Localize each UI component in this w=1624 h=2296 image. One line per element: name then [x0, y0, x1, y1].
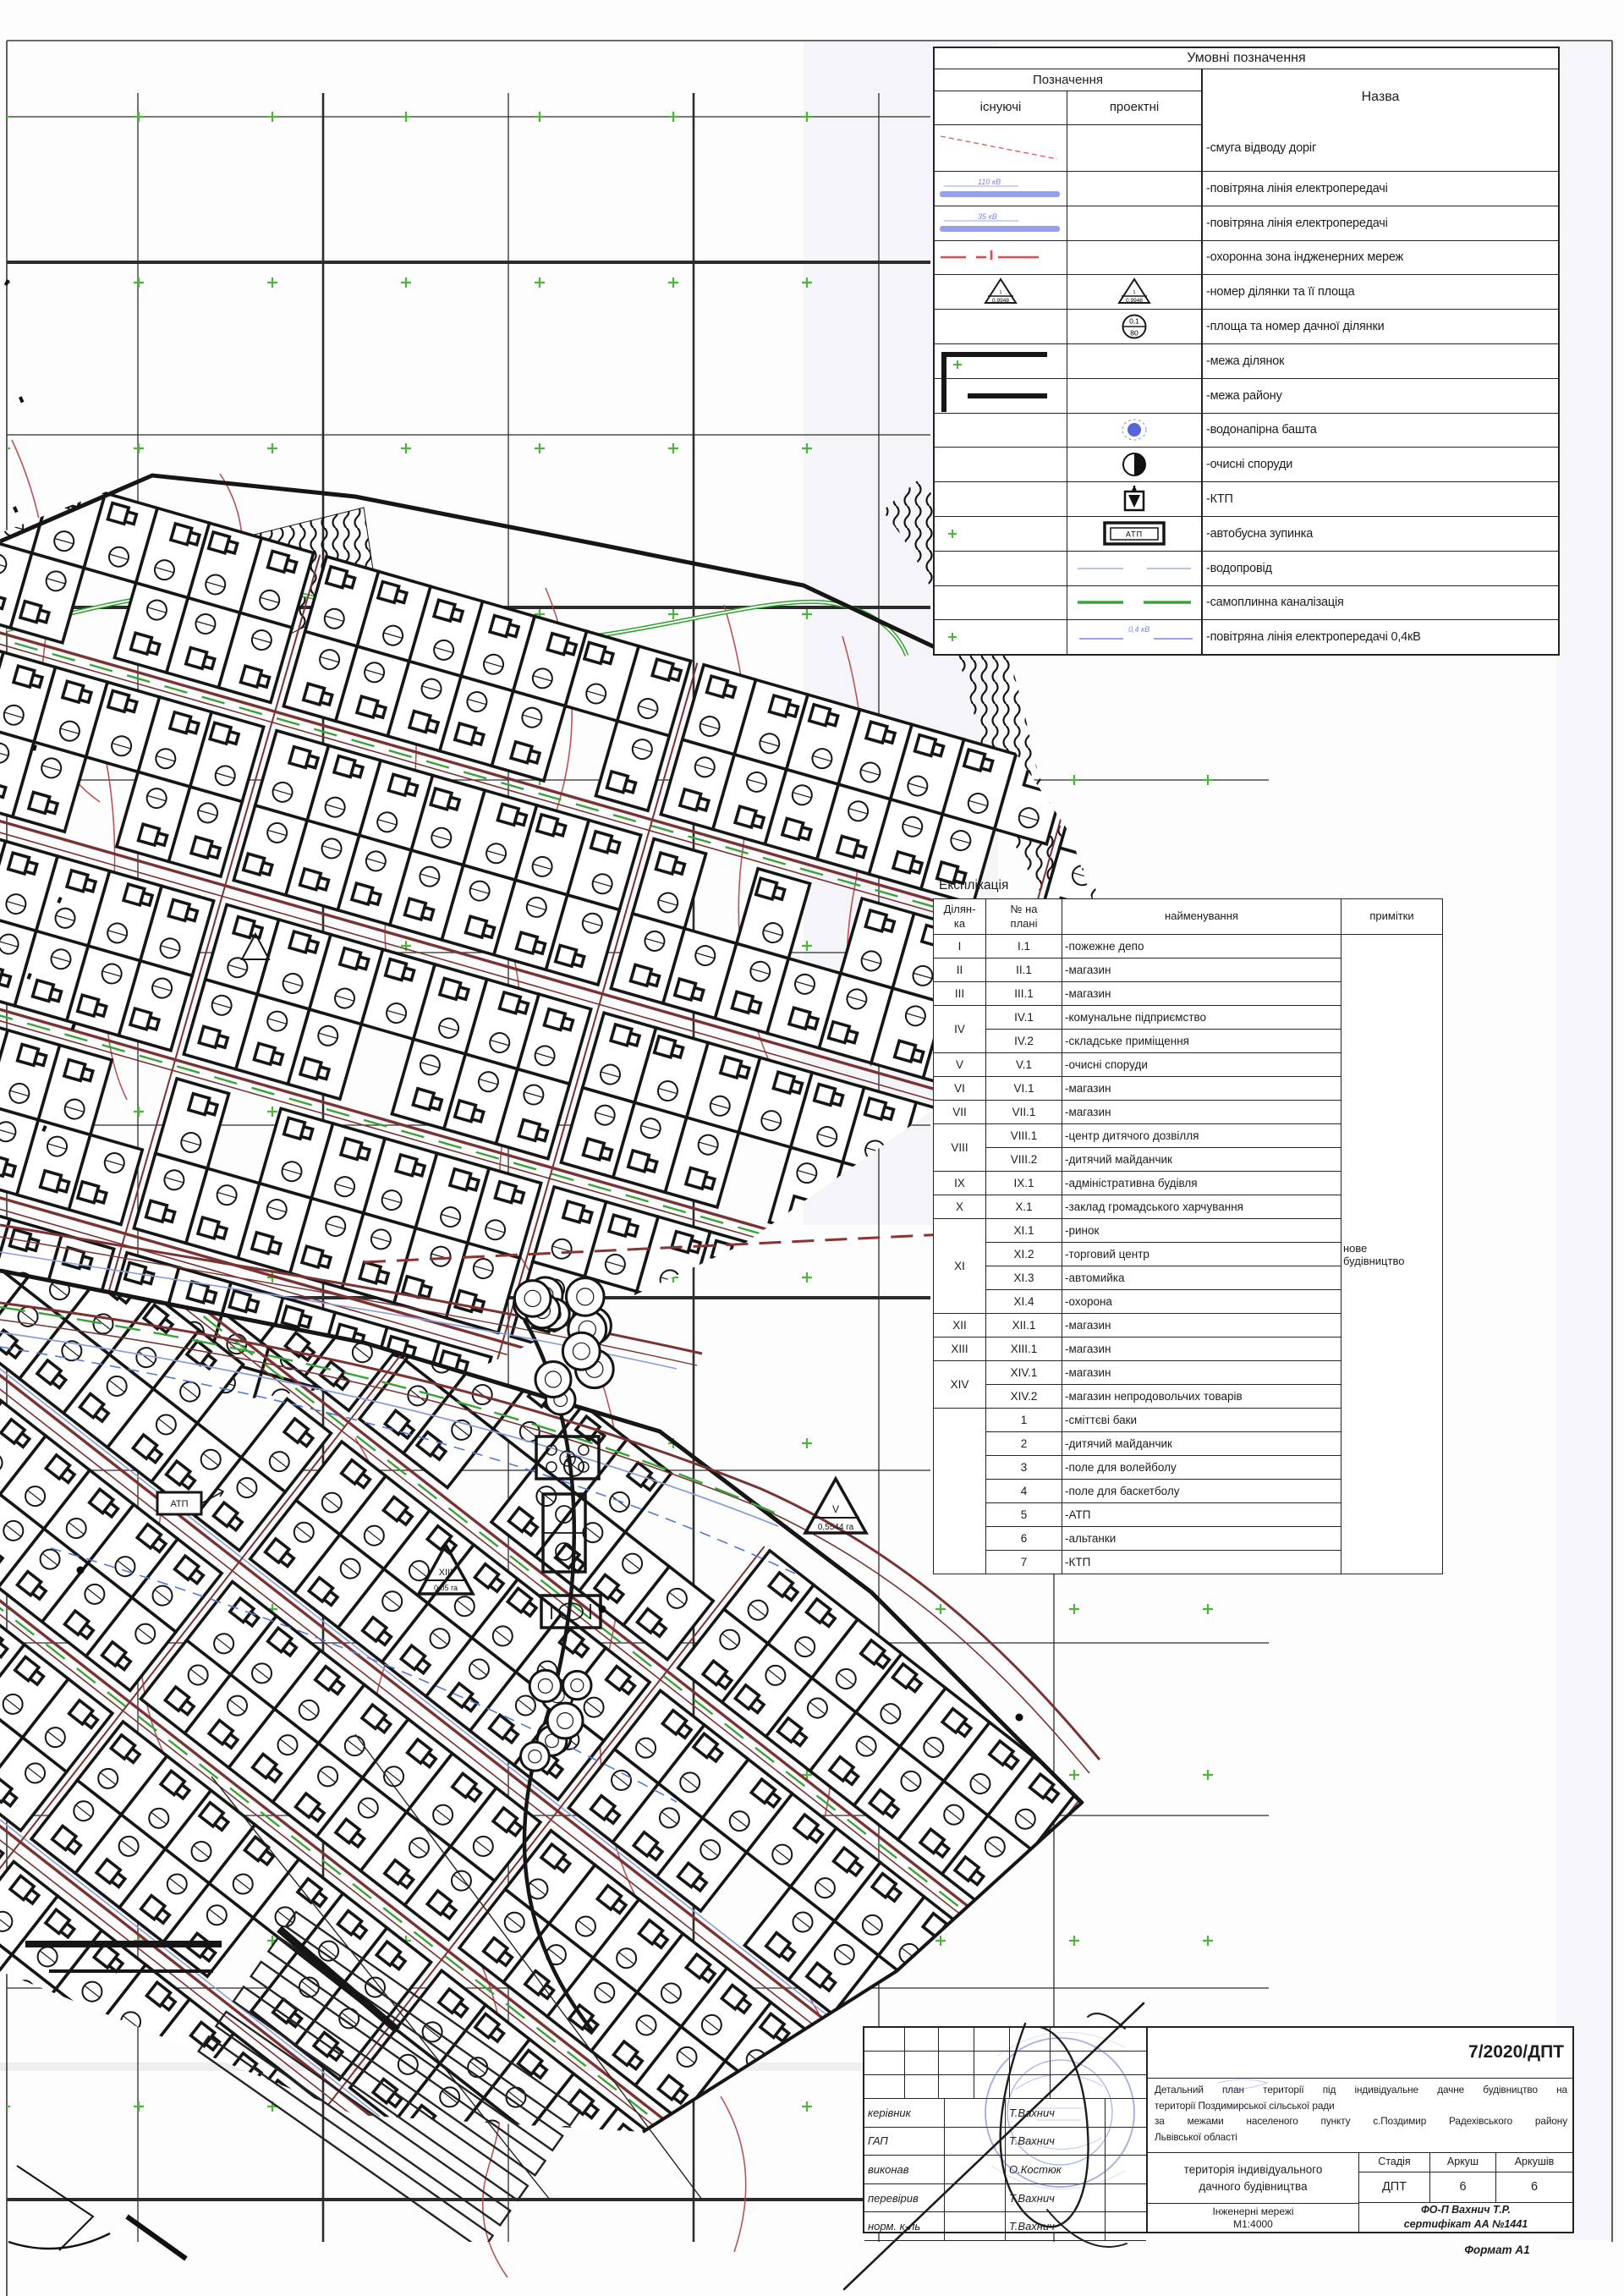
- legend-row-name: -самоплинна каналізація: [1203, 586, 1558, 620]
- legend-symbol-projected: [1067, 552, 1203, 585]
- legend-symbol-projected: [1067, 482, 1203, 516]
- expl-name-cell: -магазин: [1062, 1077, 1341, 1101]
- expl-name-cell: -магазин: [1062, 1101, 1341, 1124]
- legend-symbol-existing: 110 кВ: [935, 172, 1067, 206]
- signature-row: ГАПТ.Вахнич: [864, 2128, 1146, 2156]
- description-line: Детальний план території під індивідуаль…: [1155, 2082, 1567, 2098]
- svg-text:1: 1: [999, 290, 1001, 295]
- signature-row: норм. к-льТ.Вахнич: [864, 2212, 1146, 2241]
- expl-plot-cell: III: [934, 982, 986, 1006]
- legend-row-name: -водонапірна башта: [1203, 414, 1558, 448]
- expl-notes-cell: нове будівництво: [1341, 935, 1443, 1574]
- expl-num-cell: XII.1: [986, 1314, 1062, 1338]
- expl-num-cell: 2: [986, 1432, 1062, 1456]
- expl-name-cell: -комунальне підприємство: [1062, 1006, 1341, 1030]
- description-line: території Поздимирської сільської ради: [1155, 2098, 1567, 2114]
- expl-header-plot: Ділян- ка: [934, 899, 986, 935]
- expl-name-cell: -ринок: [1062, 1219, 1341, 1243]
- legend-symbol-existing: [935, 379, 1067, 413]
- legend-symbol-projected: [1067, 586, 1203, 620]
- legend-symbol-projected: [1067, 206, 1203, 240]
- expl-num-cell: VI.1: [986, 1077, 1062, 1101]
- legend-symbol-existing: [935, 482, 1067, 516]
- role-label: норм. к-ль: [864, 2212, 945, 2240]
- signature-row: виконавО.Костюк: [864, 2156, 1146, 2184]
- legend-row: 10,994810,9948-номер ділянки та її площа: [935, 275, 1558, 310]
- legend-row-name: -номер ділянки та її площа: [1203, 275, 1558, 309]
- legend-symbol-projected: [1067, 379, 1203, 413]
- expl-name-cell: -заклад громадського харчування: [1062, 1195, 1341, 1219]
- legend-row-name: -межа ділянок: [1203, 344, 1558, 378]
- expl-num-cell: VIII.1: [986, 1124, 1062, 1148]
- legend-row: 0,4 кВ-повітряна лінія електропередачі 0…: [935, 620, 1558, 654]
- svg-text:0,1: 0,1: [1129, 317, 1139, 326]
- description-line: Львівської області: [1155, 2129, 1567, 2145]
- role-name: Т.Вахнич: [1006, 2128, 1106, 2156]
- legend-row: 110 кВ-повітряна лінія електропередачі: [935, 172, 1558, 206]
- project-description: Детальний план території під індивідуаль…: [1148, 2079, 1572, 2154]
- legend-symbol-existing: [935, 620, 1067, 654]
- role-label: перевірив: [864, 2184, 945, 2212]
- expl-name-cell: -дитячий майданчик: [1062, 1432, 1341, 1456]
- stage-value: ДПТ: [1359, 2172, 1430, 2202]
- svg-text:XIII: XIII: [439, 1568, 453, 1578]
- legend-symbol-existing: [935, 414, 1067, 448]
- doc-number: 7/2020/ДПТ: [1148, 2028, 1572, 2079]
- legend-symbol-existing: [935, 448, 1067, 481]
- expl-name-cell: -очисні споруди: [1062, 1053, 1341, 1077]
- role-label: ГАП: [864, 2128, 945, 2156]
- company-certificate: ФО-П Вахнич Т.Р. сертифікат АА №1441: [1359, 2203, 1572, 2232]
- legend-row-name: -повітряна лінія електропередачі 0,4кВ: [1203, 620, 1558, 654]
- expl-num-cell: IX.1: [986, 1172, 1062, 1195]
- expl-name-cell: -торговий центр: [1062, 1243, 1341, 1266]
- expl-num-cell: 4: [986, 1480, 1062, 1503]
- expl-name-cell: -поле для волейболу: [1062, 1456, 1341, 1480]
- svg-text:0,9948: 0,9948: [992, 298, 1009, 304]
- expl-num-cell: VII.1: [986, 1101, 1062, 1124]
- expl-name-cell: -адміністративна будівля: [1062, 1172, 1341, 1195]
- expl-num-cell: VIII.2: [986, 1148, 1062, 1172]
- signature-row: керівникТ.Вахнич: [864, 2099, 1146, 2128]
- legend-header: Позначення Назва існуючі проектні: [935, 69, 1558, 125]
- svg-text:35 кВ: 35 кВ: [978, 212, 997, 221]
- expl-name-cell: -дитячий майданчик: [1062, 1148, 1341, 1172]
- legend-symbol-existing: 10,9948: [935, 275, 1067, 309]
- legend-symbol-projected: 0,4 кВ: [1067, 620, 1203, 654]
- expl-plot-cell: VI: [934, 1077, 986, 1101]
- explication-row: II.1-пожежне депонове будівництво: [934, 935, 1443, 958]
- signature-row: перевіривТ.Вахнич: [864, 2184, 1146, 2213]
- expl-name-cell: -охорона: [1062, 1290, 1341, 1314]
- expl-header-notes: примітки: [1341, 899, 1443, 935]
- format-note: Формат А1: [1429, 2244, 1565, 2256]
- role-name: О.Костюк: [1006, 2156, 1106, 2183]
- legend-row: -водопровід: [935, 552, 1558, 586]
- expl-num-cell: XIII.1: [986, 1338, 1062, 1361]
- legend-col-designation: Позначення: [935, 69, 1203, 91]
- legend-symbol-existing: 35 кВ: [935, 206, 1067, 240]
- expl-num-cell: IV.1: [986, 1006, 1062, 1030]
- legend-symbol-projected: [1067, 414, 1203, 448]
- legend-row-name: -очисні споруди: [1203, 448, 1558, 481]
- expl-name-cell: -магазин: [1062, 958, 1341, 982]
- expl-plot-cell: I: [934, 935, 986, 958]
- expl-plot-cell: XI: [934, 1219, 986, 1314]
- expl-name-cell: -магазин: [1062, 1338, 1341, 1361]
- expl-plot-cell: IX: [934, 1172, 986, 1195]
- expl-name-cell: -магазин: [1062, 1361, 1341, 1385]
- expl-name-cell: -поле для баскетболу: [1062, 1480, 1341, 1503]
- svg-text:2: 2: [565, 1455, 570, 1464]
- expl-plot-cell: II: [934, 958, 986, 982]
- expl-plot-cell: XIV: [934, 1361, 986, 1409]
- legend-symbol-projected: 0,180: [1067, 310, 1203, 343]
- expl-plot-cell: VII: [934, 1101, 986, 1124]
- legend-row: -межа ділянок: [935, 344, 1558, 379]
- role-label: виконав: [864, 2156, 945, 2183]
- expl-num-cell: III.1: [986, 982, 1062, 1006]
- expl-name-cell: -альтанки: [1062, 1527, 1341, 1551]
- legend-row: 35 кВ-повітряна лінія електропередачі: [935, 206, 1558, 241]
- role-label: керівник: [864, 2099, 945, 2127]
- legend-symbol-projected: [1067, 344, 1203, 378]
- sheet-title: Інженерні мережі М1:4000: [1148, 2204, 1358, 2232]
- expl-num-cell: V.1: [986, 1053, 1062, 1077]
- description-line: за межами населеного пункту с.Поздимир Р…: [1155, 2113, 1567, 2129]
- stage-header: Стадія Аркуш Аркушів: [1359, 2153, 1572, 2172]
- legend-row: 0,180-площа та номер дачної ділянки: [935, 310, 1558, 344]
- expl-num-cell: XIV.2: [986, 1385, 1062, 1409]
- legend-symbol-projected: [1067, 241, 1203, 275]
- expl-name-cell: -магазин непродовольчих товарів: [1062, 1385, 1341, 1409]
- legend-symbol-existing: [935, 552, 1067, 585]
- legend-row: -межа району: [935, 379, 1558, 414]
- legend-symbol-existing: [935, 517, 1067, 551]
- svg-text:110 кВ: 110 кВ: [978, 178, 1001, 186]
- expl-num-cell: 7: [986, 1551, 1062, 1574]
- role-name: Т.Вахнич: [1006, 2184, 1106, 2212]
- expl-num-cell: IV.2: [986, 1030, 1062, 1053]
- object-title: територія індивідуального дачного будівн…: [1148, 2153, 1358, 2204]
- expl-plot-cell: [934, 1409, 986, 1574]
- svg-text:V: V: [832, 1503, 839, 1515]
- stage-values: ДПТ 6 6: [1359, 2172, 1572, 2203]
- legend-row: -самоплинна каналізація: [935, 586, 1558, 621]
- legend-symbol-projected: [1067, 448, 1203, 481]
- explication-title: Експлікація: [939, 878, 1008, 893]
- legend-symbol-existing: [935, 241, 1067, 275]
- legend-row: АТП-автобусна зупинка: [935, 517, 1558, 552]
- expl-num-cell: I.1: [986, 935, 1062, 958]
- expl-plot-cell: XIII: [934, 1338, 986, 1361]
- legend-symbol-existing: [935, 586, 1067, 620]
- expl-num-cell: II.1: [986, 958, 1062, 982]
- legend-row: -охоронна зона індженерних мереж: [935, 241, 1558, 276]
- expl-num-cell: 6: [986, 1527, 1062, 1551]
- svg-text:АТП: АТП: [170, 1499, 188, 1509]
- expl-num-cell: XI.2: [986, 1243, 1062, 1266]
- expl-num-cell: 3: [986, 1456, 1062, 1480]
- legend-row: -водонапірна башта: [935, 414, 1558, 448]
- legend-symbol-projected: [1067, 125, 1203, 171]
- legend-symbol-projected: АТП: [1067, 517, 1203, 551]
- title-block: керівникТ.ВахничГАПТ.ВахничвиконавО.Кост…: [863, 2026, 1574, 2233]
- legend-row-name: -смуга відводу доріг: [1203, 125, 1558, 171]
- legend-col-name: Назва: [1203, 69, 1558, 125]
- expl-num-cell: X.1: [986, 1195, 1062, 1219]
- svg-text:1: 1: [1133, 290, 1135, 295]
- expl-name-cell: -складське приміщення: [1062, 1030, 1341, 1053]
- role-name: Т.Вахнич: [1006, 2099, 1106, 2127]
- legend-row-name: -водопровід: [1203, 552, 1558, 585]
- expl-num-cell: 5: [986, 1503, 1062, 1527]
- sheets-label: Аркушів: [1496, 2153, 1572, 2172]
- legend-row: -очисні споруди: [935, 448, 1558, 482]
- legend-symbol-existing: [935, 310, 1067, 343]
- svg-text:80: 80: [1130, 329, 1138, 338]
- expl-plot-cell: XII: [934, 1314, 986, 1338]
- sheet-label: Аркуш: [1430, 2153, 1496, 2172]
- legend-col-projected: проектні: [1067, 91, 1203, 125]
- legend-symbol-existing: [935, 125, 1067, 171]
- drawing-sheet: 2 АТП V 0,5544 га XIII 0,05 га Умовні по…: [0, 0, 1624, 2296]
- expl-name-cell: -АТП: [1062, 1503, 1341, 1527]
- expl-name-cell: -магазин: [1062, 982, 1341, 1006]
- svg-text:0,5544 га: 0,5544 га: [818, 1523, 854, 1532]
- legend-row-name: -охоронна зона індженерних мереж: [1203, 241, 1558, 275]
- expl-num-cell: XI.3: [986, 1266, 1062, 1290]
- svg-text:0,4 кВ: 0,4 кВ: [1128, 625, 1149, 634]
- expl-num-cell: XI.1: [986, 1219, 1062, 1243]
- expl-name-cell: -сміттєві баки: [1062, 1409, 1341, 1432]
- svg-text:АТП: АТП: [1126, 530, 1143, 538]
- expl-num-cell: 1: [986, 1409, 1062, 1432]
- svg-text:0,9948: 0,9948: [1126, 298, 1143, 304]
- expl-name-cell: -автомийка: [1062, 1266, 1341, 1290]
- signature-table: керівникТ.ВахничГАПТ.ВахничвиконавО.Кост…: [864, 2028, 1148, 2232]
- legend-row-name: -повітряна лінія електропередачі: [1203, 172, 1558, 206]
- expl-name-cell: -центр дитячого дозвілля: [1062, 1124, 1341, 1148]
- legend-symbol-existing: [935, 344, 1067, 378]
- expl-plot-cell: IV: [934, 1006, 986, 1053]
- expl-num-cell: XIV.1: [986, 1361, 1062, 1385]
- expl-name-cell: -магазин: [1062, 1314, 1341, 1338]
- legend-row-name: -межа району: [1203, 379, 1558, 413]
- legend-symbol-projected: 10,9948: [1067, 275, 1203, 309]
- expl-name-cell: -пожежне депо: [1062, 935, 1341, 958]
- legend-row: -КТП: [935, 482, 1558, 517]
- expl-plot-cell: V: [934, 1053, 986, 1077]
- expl-name-cell: -КТП: [1062, 1551, 1341, 1574]
- expl-plot-cell: X: [934, 1195, 986, 1219]
- expl-header-num: № на плані: [986, 899, 1062, 935]
- sheets-value: 6: [1496, 2172, 1572, 2202]
- legend-row-name: -площа та номер дачної ділянки: [1203, 310, 1558, 343]
- stage-label: Стадія: [1359, 2153, 1430, 2172]
- legend-col-existing: існуючі: [935, 91, 1067, 125]
- svg-text:0,05 га: 0,05 га: [434, 1584, 458, 1592]
- explication-table: Ділян- ка № на плані найменування приміт…: [933, 898, 1443, 1574]
- legend-symbol-projected: [1067, 172, 1203, 206]
- expl-num-cell: XI.4: [986, 1290, 1062, 1314]
- legend-table: Умовні позначення Позначення Назва існую…: [933, 47, 1560, 656]
- expl-plot-cell: VIII: [934, 1124, 986, 1172]
- expl-header-name: найменування: [1062, 899, 1341, 935]
- legend-title: Умовні позначення: [935, 48, 1558, 69]
- legend-row-name: -автобусна зупинка: [1203, 517, 1558, 551]
- legend-row-name: -повітряна лінія електропередачі: [1203, 206, 1558, 240]
- legend-row: -смуга відводу доріг: [935, 125, 1558, 172]
- role-name: Т.Вахнич: [1006, 2212, 1106, 2240]
- sheet-value: 6: [1430, 2172, 1496, 2202]
- legend-row-name: -КТП: [1203, 482, 1558, 516]
